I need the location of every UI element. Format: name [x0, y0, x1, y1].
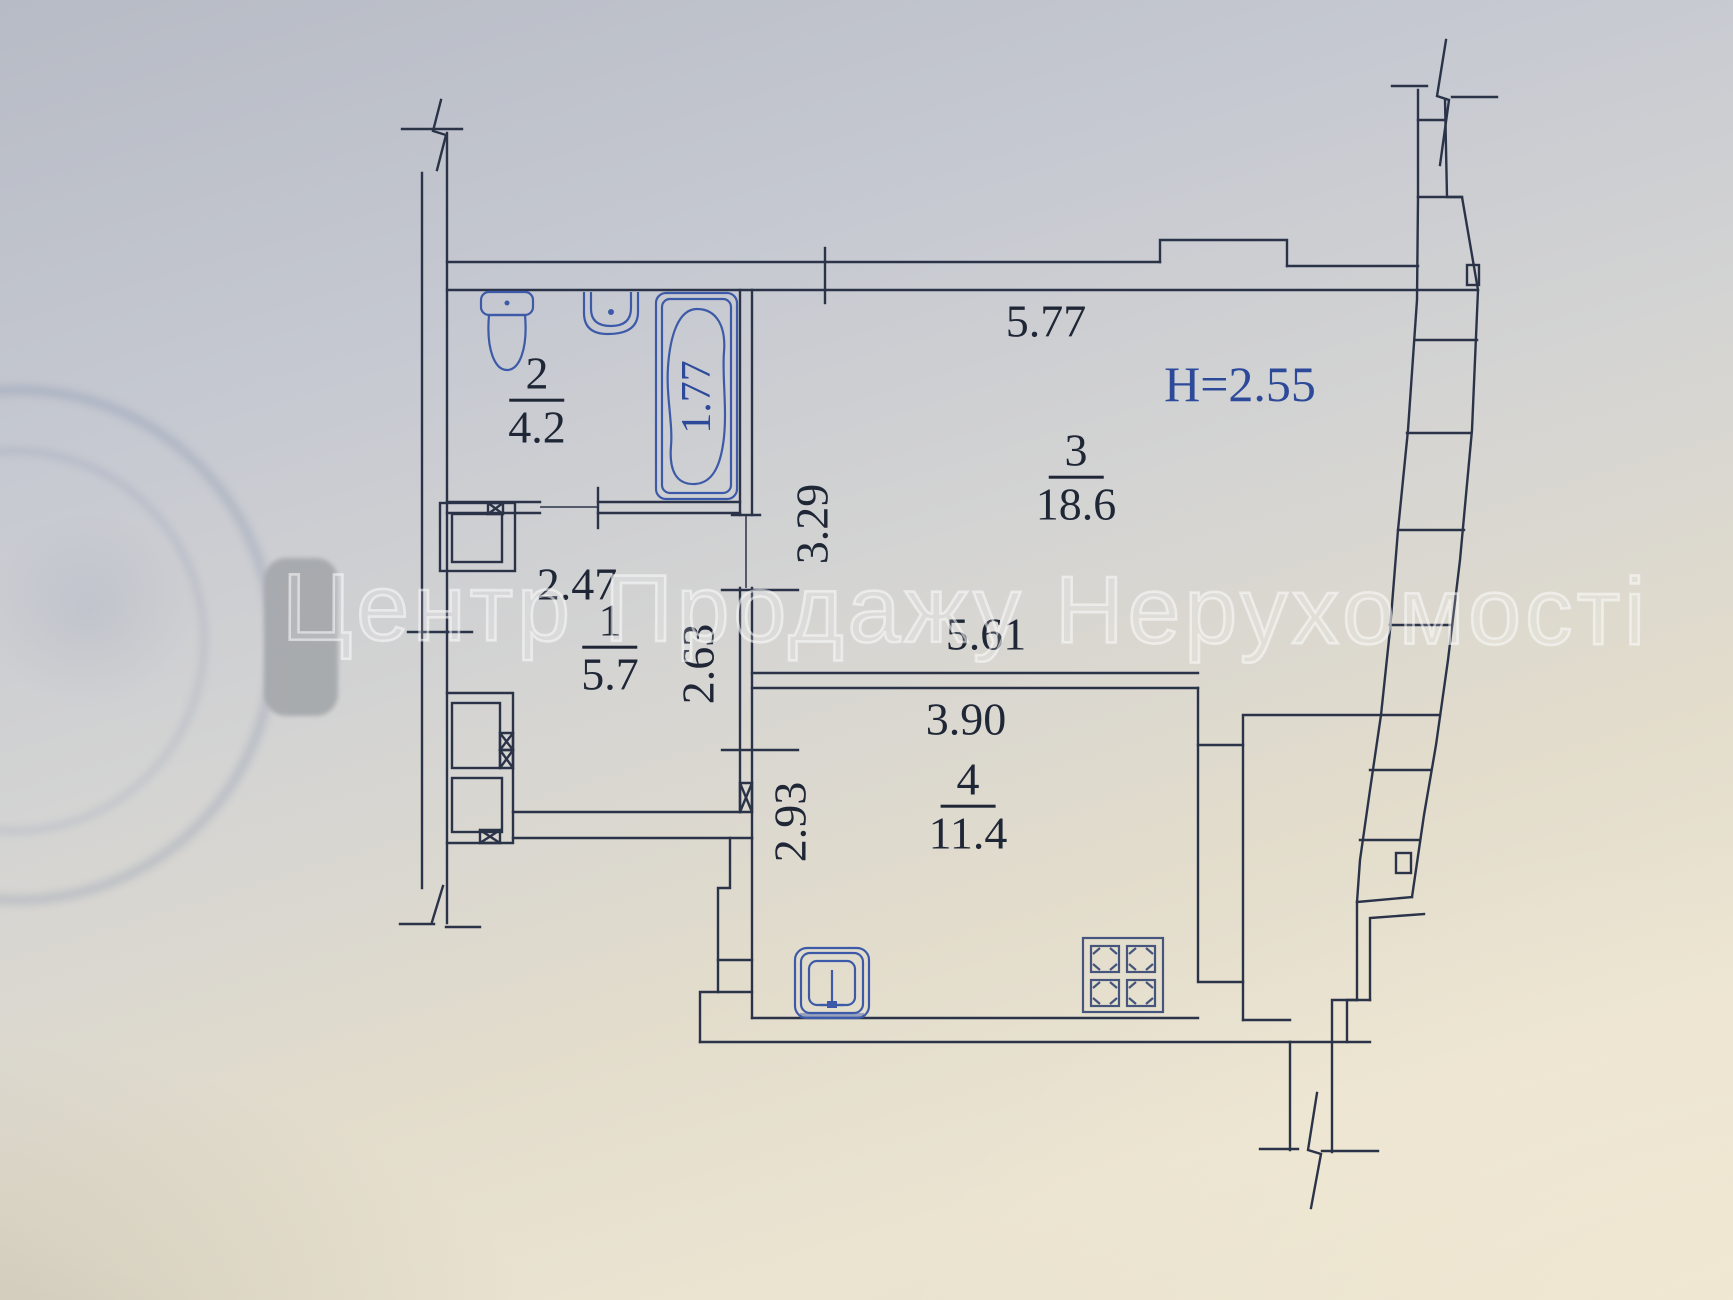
room-area: 11.4: [929, 808, 1008, 858]
room-label-living: 3 18.6: [1036, 427, 1117, 530]
dim-kitchen-width: 3.90: [926, 693, 1007, 746]
wall-break-tick: [1392, 86, 1497, 97]
wall-window-marker: [1396, 853, 1411, 873]
room-area: 18.6: [1036, 479, 1117, 529]
dim-room3-top-width: 5.77: [1006, 295, 1087, 348]
wall-break-symbol-bottom-right: [1308, 1093, 1321, 1208]
dim-tub-length: 1.77: [673, 360, 721, 434]
wall-break-symbol-top-right: [1437, 40, 1449, 165]
scanned-floor-plan-photo: 2.47 1 5.7 2 4.2 5.77 Н=2.55 3 18.6 3.29…: [0, 0, 1733, 1300]
bathroom-sink-icon: [584, 292, 638, 334]
watermark-text: Центр Продажу Нерухомості: [282, 554, 1650, 668]
dim-kitchen-depth: 2.93: [764, 782, 817, 863]
vent-shaft-x: [500, 750, 513, 768]
room-number: 2: [510, 350, 565, 402]
wall-break-symbol-top-left: [433, 100, 446, 170]
curtain-wall-inner: [1357, 90, 1418, 902]
ceiling-height-label: Н=2.55: [1164, 355, 1316, 413]
vent-shaft-x: [500, 733, 513, 750]
room-label-bathroom: 2 4.2: [508, 350, 566, 453]
wall-break-symbol-bottom-left: [432, 886, 443, 922]
stove-icon: [1083, 938, 1163, 1012]
kitchen-sink-icon: [795, 948, 869, 1018]
room-area: 4.2: [508, 402, 566, 452]
vent-shaft-x: [740, 783, 752, 812]
curtain-wall-outer: [1412, 99, 1478, 897]
room-number: 4: [940, 756, 995, 808]
room-number: 3: [1049, 427, 1104, 479]
dim-room3-depth: 3.29: [786, 484, 839, 565]
burner-marks: [1093, 948, 1153, 1004]
room-label-kitchen: 4 11.4: [929, 756, 1008, 859]
